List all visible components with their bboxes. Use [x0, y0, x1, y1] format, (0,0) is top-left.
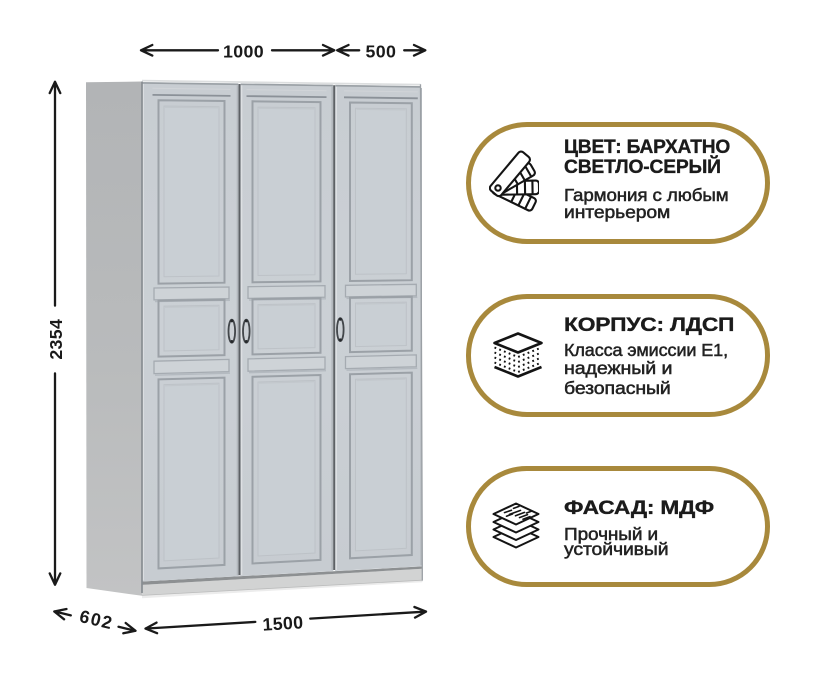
- svg-text:1500: 1500: [262, 612, 304, 634]
- svg-text:500: 500: [366, 42, 397, 62]
- svg-text:602: 602: [78, 606, 116, 633]
- svg-text:1000: 1000: [223, 42, 264, 62]
- svg-text:2354: 2354: [46, 319, 66, 360]
